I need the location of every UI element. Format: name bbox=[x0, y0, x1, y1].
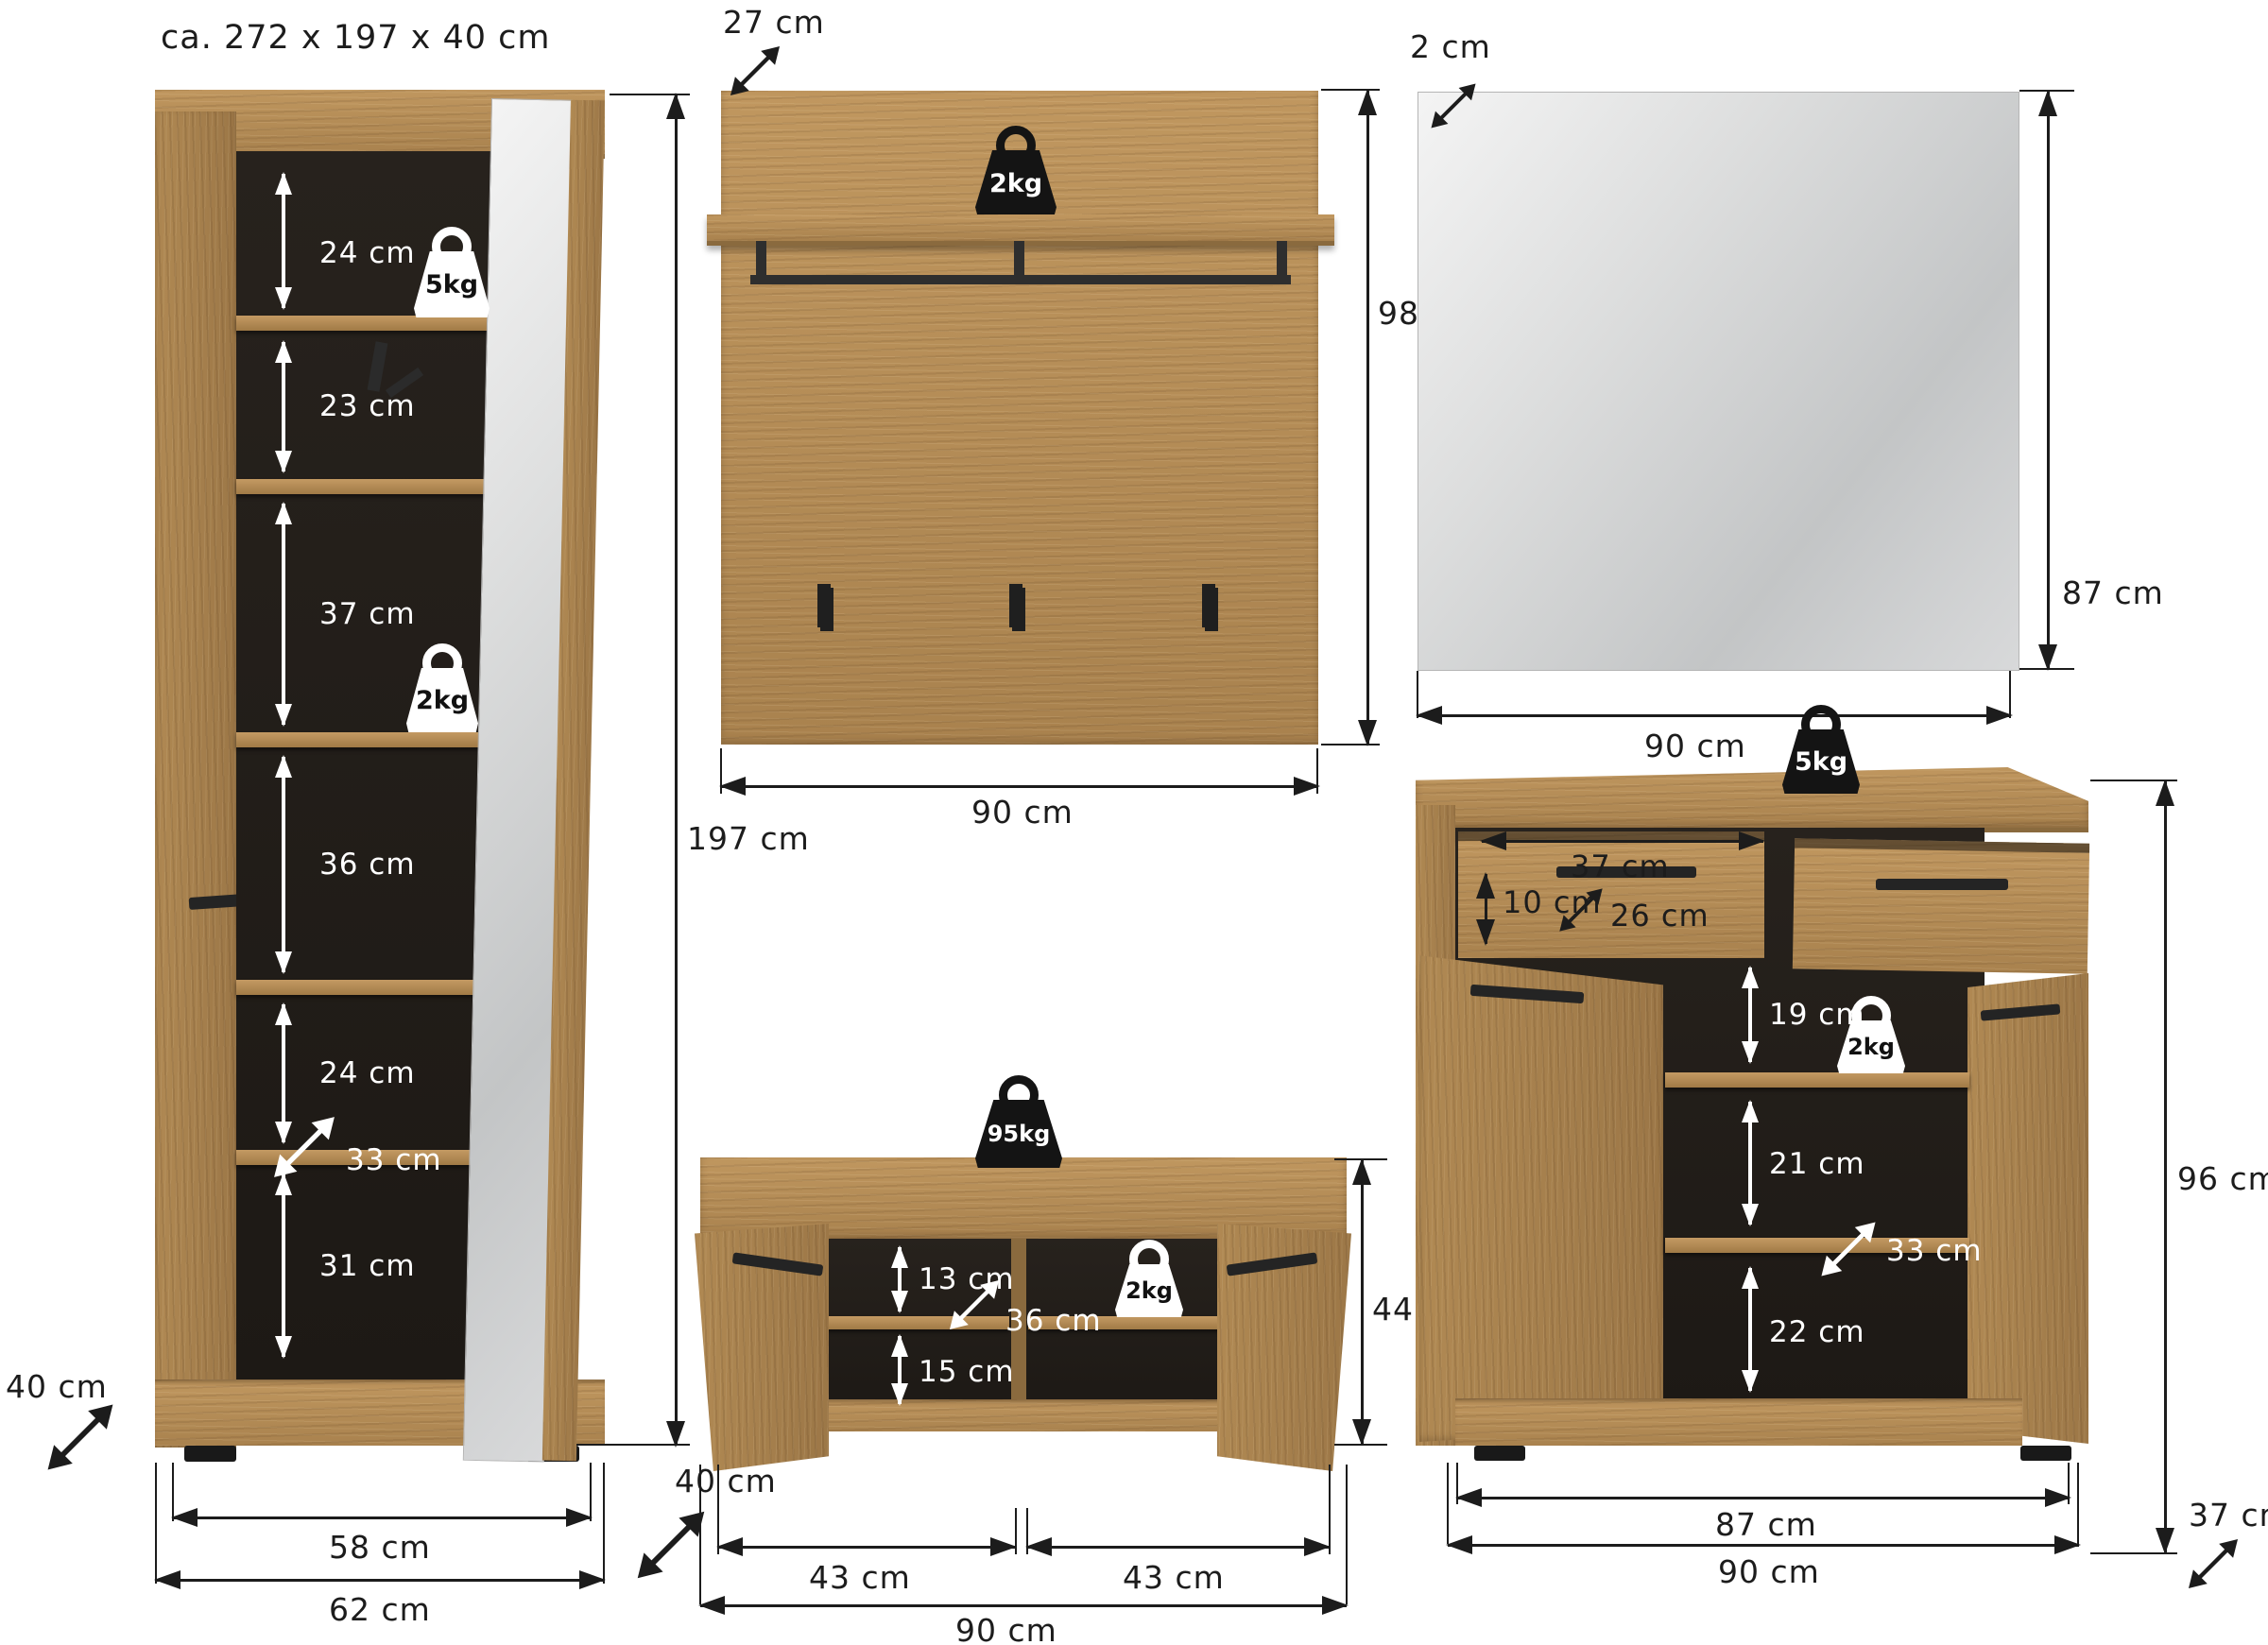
wardrobe-inner-width-label: 58 cm bbox=[329, 1529, 431, 1566]
mirror-surface bbox=[1417, 92, 2019, 671]
mirror-thickness-label: 2 cm bbox=[1410, 28, 1491, 65]
bench-right-door-width-line bbox=[1027, 1546, 1329, 1549]
set-height-line bbox=[675, 94, 678, 1446]
set-height-label: 197 cm bbox=[687, 820, 810, 857]
wardrobe-section-arrow bbox=[282, 757, 285, 972]
right-drawer-handle bbox=[1876, 879, 2008, 890]
mirror-width-label: 90 cm bbox=[1644, 728, 1746, 764]
weight-label: 5kg bbox=[1782, 729, 1860, 794]
wardrobe-section-label: 24 cm bbox=[319, 236, 416, 270]
shoe-cabinet-shelf bbox=[1665, 1072, 1969, 1088]
weight-label: 2kg bbox=[406, 668, 478, 732]
wardrobe-section-arrow bbox=[282, 1174, 285, 1357]
wardrobe-inner-width-line bbox=[173, 1516, 591, 1519]
mirror-width-line bbox=[1417, 714, 2011, 717]
shoe-cabinet-right-drawer bbox=[1793, 838, 2089, 973]
bench-upper-arrow bbox=[898, 1247, 902, 1311]
panel-width-label: 90 cm bbox=[971, 794, 1074, 831]
load-weight-icon: 5kg bbox=[414, 227, 490, 317]
shoe-cabinet-foot bbox=[1474, 1446, 1525, 1461]
set-dimensions-title: ca. 272 x 197 x 40 cm bbox=[161, 19, 550, 57]
shoe-cabinet-depth-label: 37 cm bbox=[2189, 1497, 2268, 1534]
wardrobe-shelf bbox=[236, 732, 493, 747]
extension-line bbox=[603, 1463, 605, 1584]
bench-depth-label: 40 cm bbox=[675, 1463, 777, 1499]
drawer-width-line bbox=[1482, 840, 1763, 843]
extension-line bbox=[1447, 1463, 1449, 1544]
bench-left-door-width-label: 43 cm bbox=[809, 1559, 911, 1596]
wardrobe-section-label: 31 cm bbox=[319, 1249, 416, 1283]
bench-shelf-depth-arrow bbox=[945, 1276, 1004, 1334]
shoe-cabinet-right-door bbox=[1967, 973, 2088, 1444]
mirror-height-line bbox=[2047, 92, 2050, 669]
load-weight-icon: 2kg bbox=[406, 643, 478, 732]
drawer-width-label: 37 cm bbox=[1571, 848, 1670, 884]
wardrobe-left-door bbox=[155, 111, 236, 1448]
bench-width-label: 90 cm bbox=[955, 1612, 1057, 1645]
weight-label: 2kg bbox=[975, 150, 1057, 216]
wardrobe-outer-width-line bbox=[156, 1579, 604, 1582]
wardrobe-shelf bbox=[236, 479, 493, 494]
bench-lower-arrow bbox=[898, 1336, 902, 1404]
shoe-section-label: 22 cm bbox=[1769, 1315, 1865, 1349]
shoe-cabinet-outer-width-label: 90 cm bbox=[1718, 1553, 1820, 1590]
wardrobe-section-arrow bbox=[282, 342, 285, 471]
shoe-shelf-depth-arrow bbox=[1816, 1217, 1881, 1281]
shoe-shelf-depth-label: 33 cm bbox=[1886, 1234, 1983, 1268]
drawer-height-line bbox=[1485, 874, 1487, 944]
bench-shelf-depth-label: 36 cm bbox=[1005, 1304, 1102, 1338]
bench-depth-arrow bbox=[631, 1504, 711, 1585]
bench-right-door-width-label: 43 cm bbox=[1123, 1559, 1225, 1596]
shoe-cabinet-foot bbox=[2020, 1446, 2071, 1461]
drawer-depth-label: 26 cm bbox=[1610, 898, 1710, 934]
wardrobe-section-arrow bbox=[282, 174, 285, 308]
load-weight-icon: 5kg bbox=[1782, 705, 1860, 794]
wardrobe-section-label: 23 cm bbox=[319, 389, 416, 423]
wardrobe-shelf bbox=[236, 980, 493, 995]
wardrobe-section-label: 36 cm bbox=[319, 848, 416, 882]
weight-label: 95kg bbox=[975, 1100, 1062, 1168]
weight-label: 2kg bbox=[1115, 1264, 1183, 1317]
shoe-cabinet-inner-width-line bbox=[1457, 1497, 2070, 1499]
shoe-section-arrow bbox=[1748, 1102, 1752, 1225]
bench-height-line bbox=[1361, 1160, 1364, 1444]
load-weight-icon: 2kg bbox=[1115, 1240, 1183, 1317]
shoe-cabinet-top-board bbox=[1416, 767, 2088, 832]
shoe-section-arrow bbox=[1748, 968, 1752, 1062]
wardrobe-section-arrow bbox=[282, 504, 285, 725]
drawer-depth-arrow bbox=[1554, 884, 1608, 935]
extension-line bbox=[155, 1463, 157, 1584]
shoe-cabinet-outer-width-line bbox=[1448, 1544, 2079, 1547]
shoe-cabinet-left-door bbox=[1419, 951, 1663, 1442]
furniture-dimension-diagram: ca. 272 x 197 x 40 cm 24 cm 23 cm 37 cm bbox=[0, 0, 2268, 1645]
shoe-section-label: 21 cm bbox=[1769, 1147, 1865, 1181]
mirror-thickness-arrow bbox=[1427, 72, 1480, 140]
load-weight-icon: 2kg bbox=[975, 126, 1057, 216]
panel-width-line bbox=[721, 785, 1318, 788]
extension-line bbox=[2077, 1463, 2079, 1544]
wardrobe-section-label: 24 cm bbox=[319, 1056, 416, 1090]
load-weight-icon: 95kg bbox=[975, 1075, 1062, 1168]
coat-hook bbox=[1009, 584, 1022, 627]
panel-height-line bbox=[1366, 91, 1369, 745]
shoe-cabinet-depth-arrow bbox=[2183, 1534, 2243, 1593]
coat-hook bbox=[817, 584, 831, 627]
weight-label: 5kg bbox=[414, 251, 490, 317]
weight-label: 2kg bbox=[1837, 1020, 1905, 1073]
extension-line bbox=[1346, 1465, 1348, 1604]
wardrobe-shelf-depth-label: 33 cm bbox=[346, 1143, 442, 1177]
shoe-cabinet-height-line bbox=[2164, 781, 2167, 1552]
wardrobe-shelf-depth-arrow bbox=[268, 1111, 340, 1183]
shoe-cabinet-plinth bbox=[1455, 1398, 2022, 1446]
wardrobe-foot bbox=[184, 1446, 236, 1462]
wardrobe-section-label: 37 cm bbox=[319, 597, 416, 631]
coat-hook bbox=[1202, 584, 1215, 627]
mirror-height-label: 87 cm bbox=[2062, 574, 2164, 611]
load-weight-icon: 2kg bbox=[1837, 996, 1905, 1073]
wardrobe-outer-width-label: 62 cm bbox=[329, 1591, 431, 1628]
panel-depth-arrow bbox=[726, 38, 784, 104]
panel-depth-label: 27 cm bbox=[723, 4, 825, 41]
coat-rail-bar bbox=[750, 275, 1291, 284]
wardrobe-depth-arrow bbox=[42, 1397, 119, 1478]
shoe-section-arrow bbox=[1748, 1268, 1752, 1391]
shoe-cabinet-height-label: 96 cm bbox=[2177, 1160, 2268, 1197]
bench-width-line bbox=[700, 1604, 1347, 1607]
bench-left-door-width-line bbox=[718, 1546, 1015, 1549]
wardrobe-shelf bbox=[236, 316, 493, 331]
bench-lower-label: 15 cm bbox=[919, 1355, 1015, 1389]
shoe-cabinet-inner-width-label: 87 cm bbox=[1715, 1506, 1817, 1543]
